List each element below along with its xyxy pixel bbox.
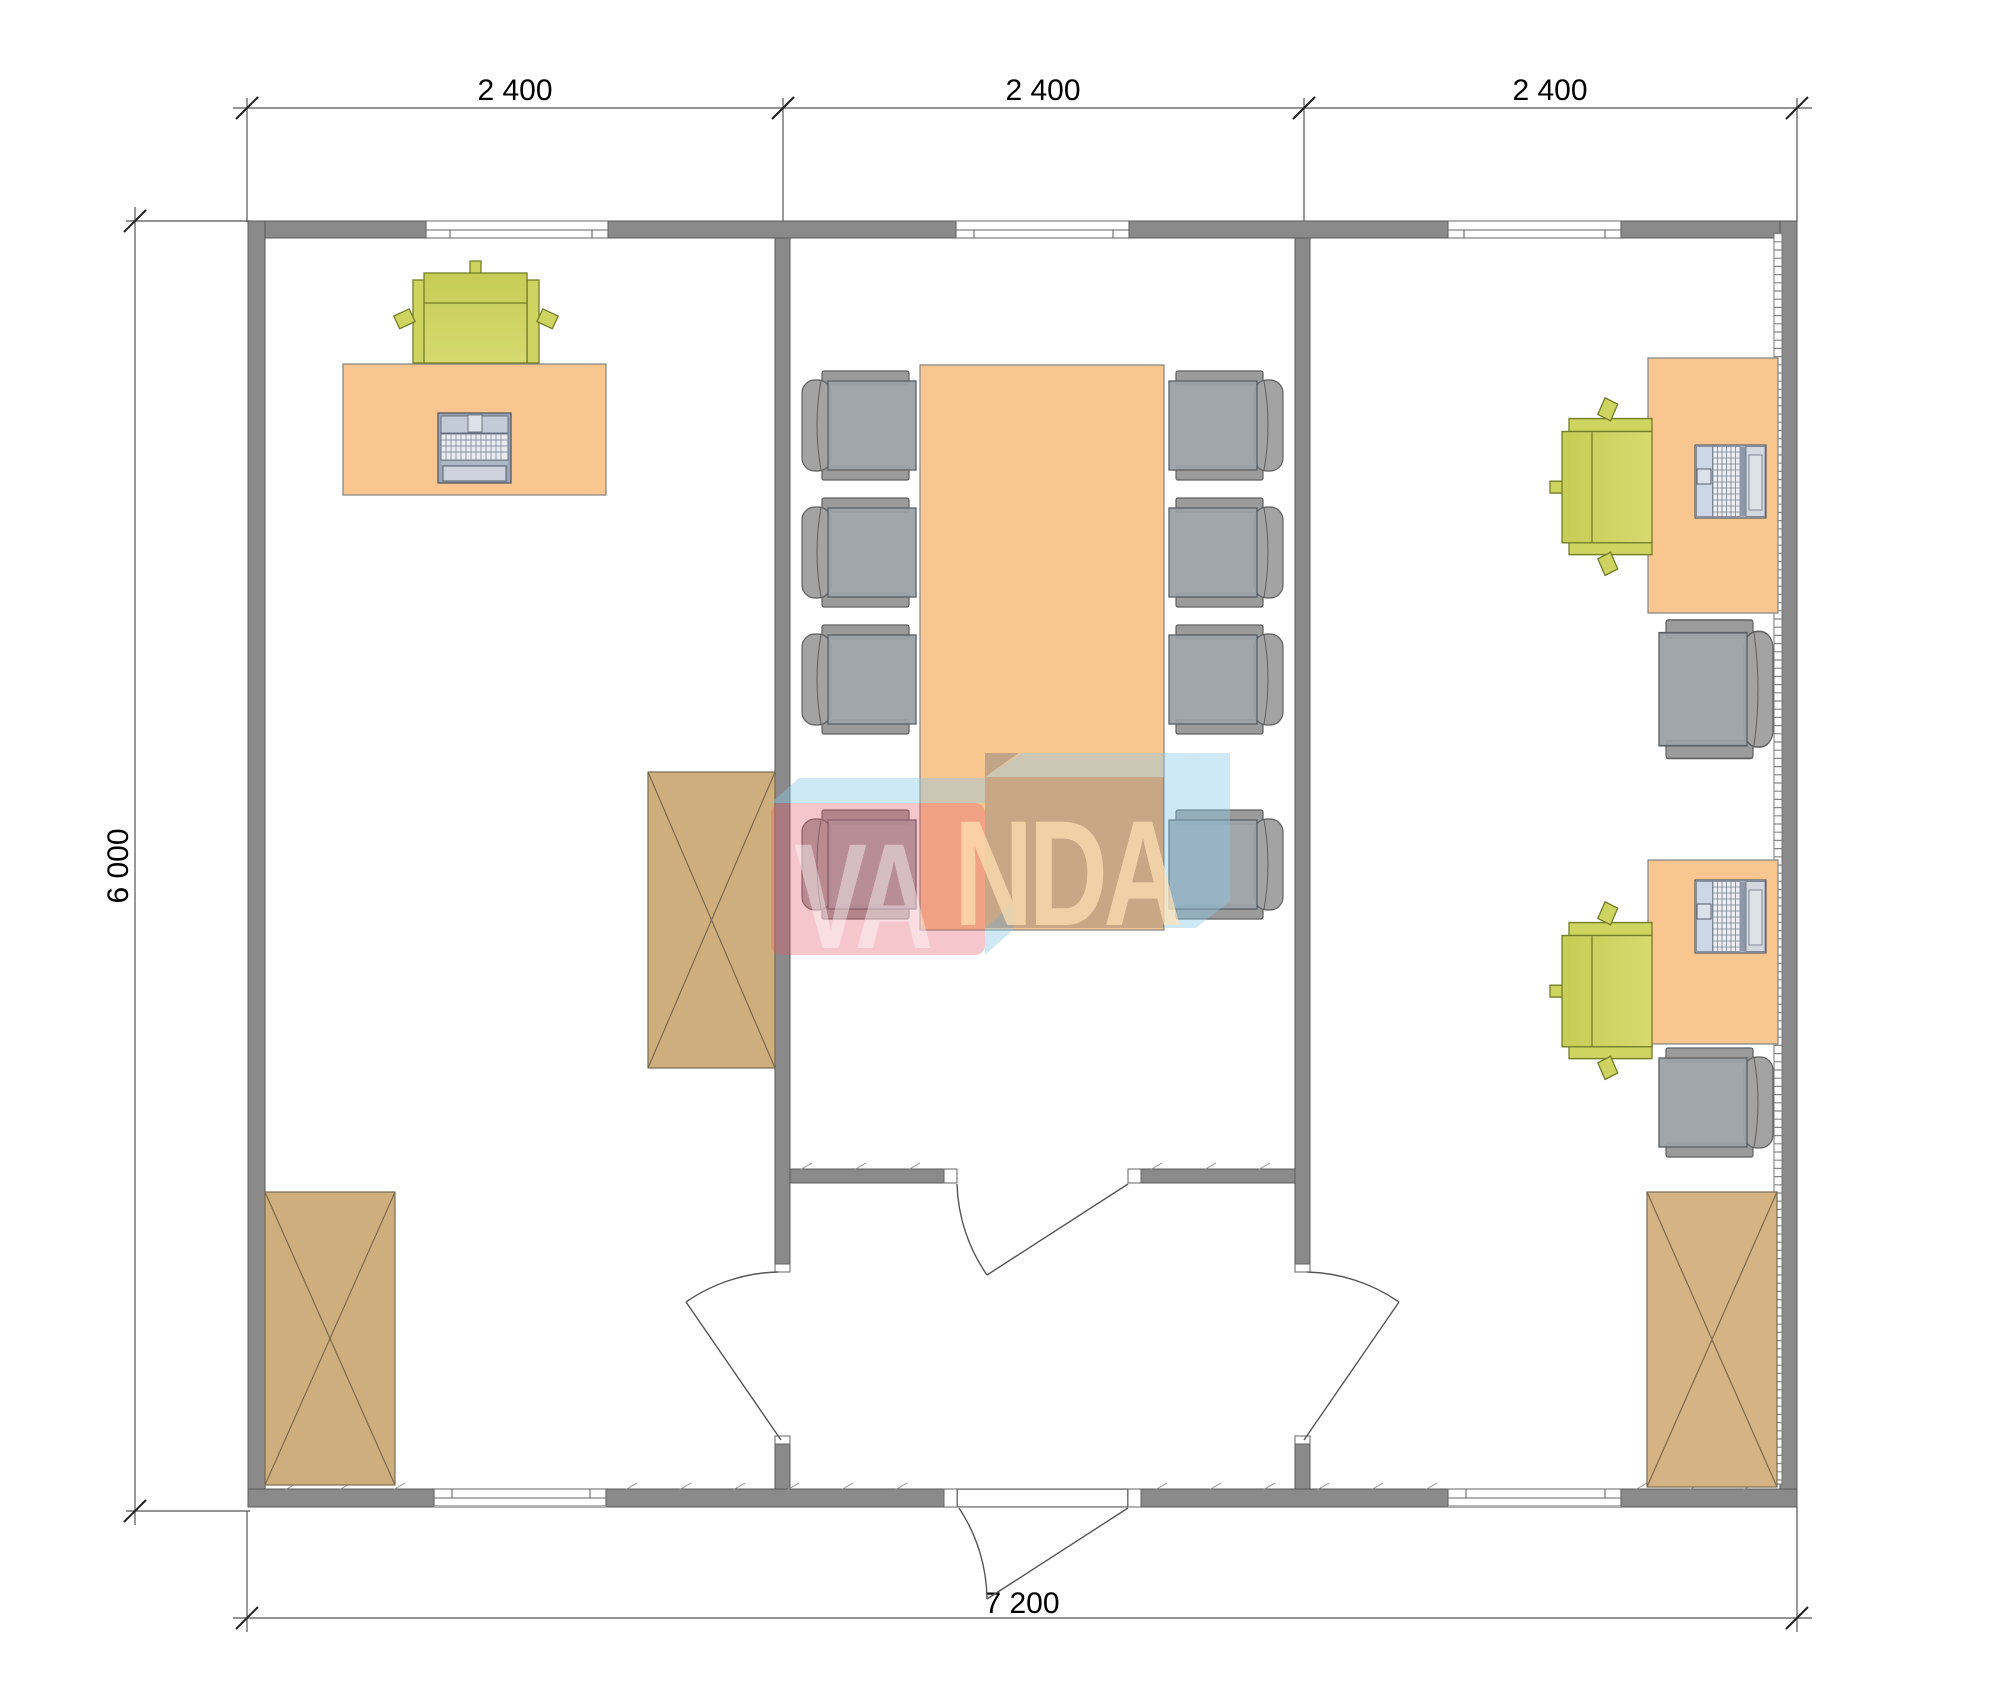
svg-text:2 400: 2 400 xyxy=(477,74,552,107)
svg-text:6 000: 6 000 xyxy=(102,828,135,903)
svg-text:2 400: 2 400 xyxy=(1005,74,1080,107)
svg-text:VA: VA xyxy=(794,812,931,980)
svg-text:7 200: 7 200 xyxy=(984,1587,1059,1620)
svg-text:NDA: NDA xyxy=(954,789,1180,957)
svg-text:2 400: 2 400 xyxy=(1512,74,1587,107)
